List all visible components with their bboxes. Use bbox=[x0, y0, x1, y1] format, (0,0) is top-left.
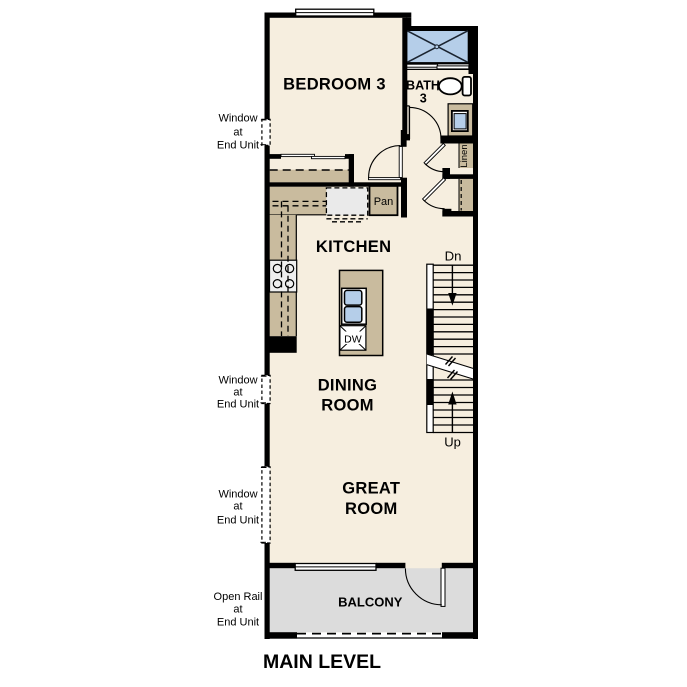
svg-text:Window: Window bbox=[218, 489, 257, 501]
svg-text:BALCONY: BALCONY bbox=[338, 594, 403, 609]
svg-text:Open Rail: Open Rail bbox=[214, 591, 263, 603]
svg-text:3: 3 bbox=[420, 92, 427, 106]
svg-text:MAIN LEVEL: MAIN LEVEL bbox=[263, 651, 381, 673]
svg-text:Dn: Dn bbox=[445, 248, 462, 263]
svg-text:End Unit: End Unit bbox=[217, 140, 259, 152]
svg-text:Linen: Linen bbox=[459, 144, 470, 167]
svg-text:DW: DW bbox=[344, 333, 362, 345]
svg-text:BEDROOM 3: BEDROOM 3 bbox=[283, 75, 386, 93]
svg-text:at: at bbox=[233, 603, 242, 615]
svg-text:Window: Window bbox=[218, 113, 257, 125]
svg-text:Window: Window bbox=[218, 374, 257, 386]
svg-text:BATH: BATH bbox=[406, 78, 440, 92]
svg-text:DINING: DINING bbox=[318, 377, 378, 395]
svg-text:ROOM: ROOM bbox=[321, 397, 374, 415]
svg-text:End Unit: End Unit bbox=[217, 514, 259, 526]
svg-text:at: at bbox=[233, 387, 242, 399]
svg-text:GREAT: GREAT bbox=[342, 480, 400, 498]
svg-text:End Unit: End Unit bbox=[217, 617, 259, 629]
svg-text:Pan: Pan bbox=[374, 196, 394, 208]
svg-text:KITCHEN: KITCHEN bbox=[316, 238, 391, 256]
svg-text:at: at bbox=[233, 501, 242, 513]
svg-text:ROOM: ROOM bbox=[345, 500, 398, 518]
svg-text:at: at bbox=[233, 126, 242, 138]
svg-text:End Unit: End Unit bbox=[217, 399, 259, 411]
svg-text:Up: Up bbox=[444, 434, 461, 449]
